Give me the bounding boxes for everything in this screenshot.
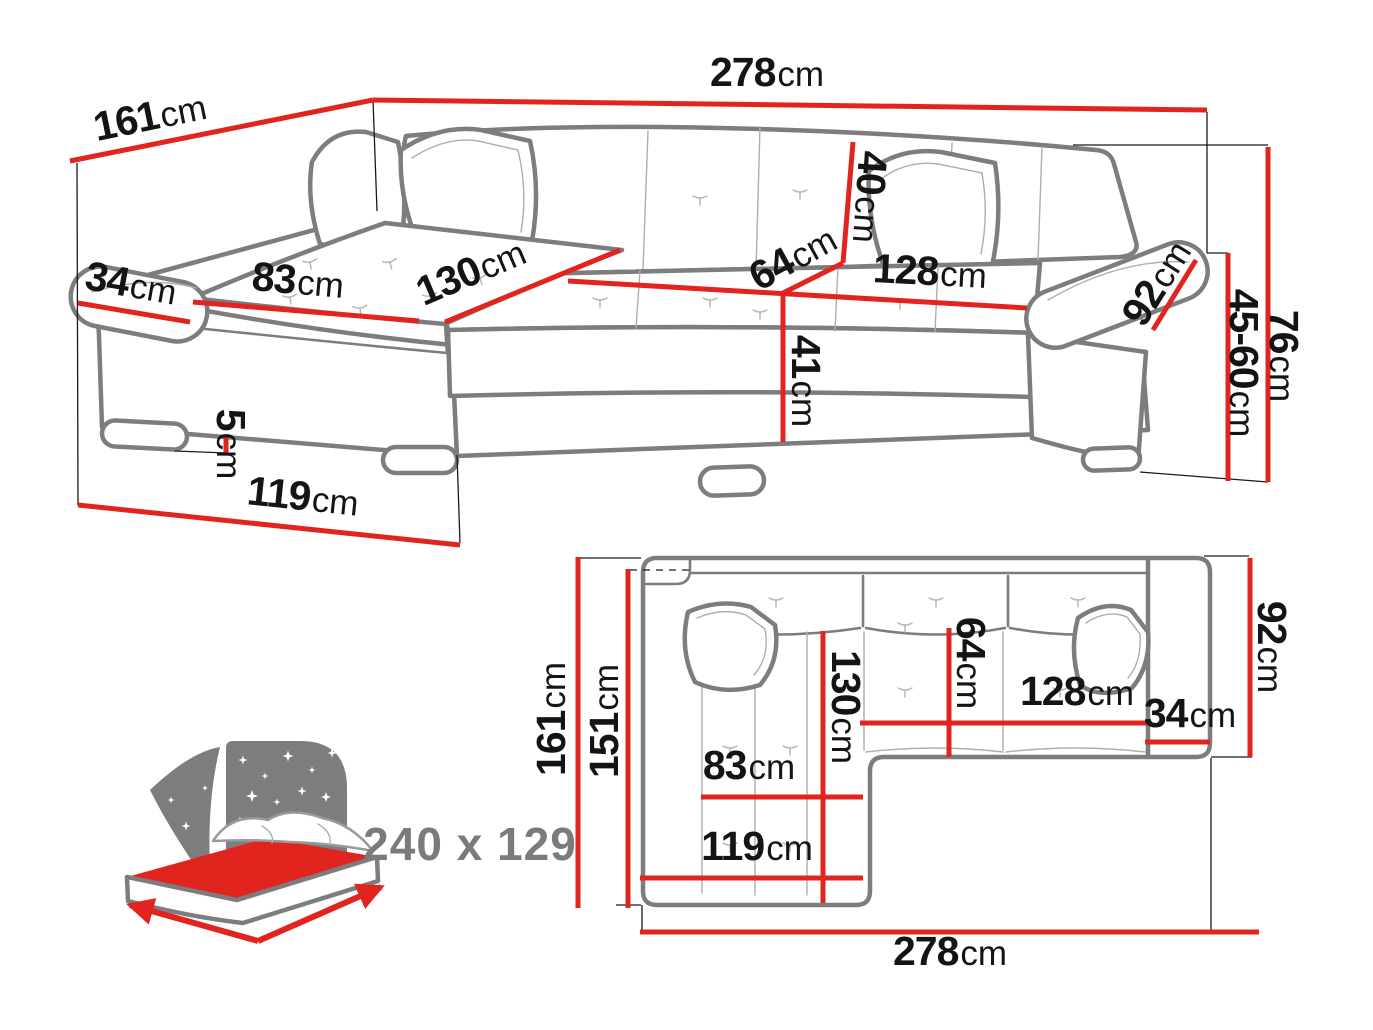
top-dim-label-64: 64cm [948,617,994,709]
top-dim-label-151: 151cm [581,664,627,778]
top-dim-label-119: 119cm [701,823,813,869]
dim-label-161: 161cm [89,82,210,150]
dim-label-5: 5cm [208,409,254,479]
leg-front-center [700,466,765,496]
top-view: 161cm 151cm 130cm 64cm 128cm 34cm 92cm 8… [528,556,1295,974]
top-dim-label-130: 130cm [823,650,869,764]
dim-label-278: 278cm [710,49,824,95]
sleeping-size-label: 240 x 129 [363,818,577,870]
top-dim-label-278: 278cm [893,928,1007,974]
perspective-view: 161cm 278cm 40cm 64cm 41cm 128cm 34cm 83… [66,49,1307,545]
top-dim-label-128: 128cm [1020,668,1134,714]
dim-line-278 [373,100,1207,110]
leg-front-mid [383,447,457,473]
top-dim-label-34: 34cm [1144,690,1236,736]
dim-label-41: 41cm [783,335,829,427]
leg-front-left [101,420,187,450]
leg-front-right [1083,447,1141,471]
top-dim-label-92: 92cm [1249,601,1295,693]
dim-label-76: 76cm [1261,310,1307,402]
main-seat-front [448,327,1034,397]
right-arm-body [1028,335,1146,462]
dim-label-119: 119cm [245,467,361,524]
sofa-dimensions-diagram: 161cm 278cm 40cm 64cm 41cm 128cm 34cm 83… [0,0,1373,1030]
pillow-top-left [685,603,777,689]
top-dim-label-161: 161cm [528,662,574,776]
dim-label-45-60: 45-60cm [1221,289,1267,438]
sleeping-area-icon: 240 x 129 [127,741,577,941]
curtain-swoosh [150,747,220,867]
top-dim-label-83: 83cm [703,742,795,788]
